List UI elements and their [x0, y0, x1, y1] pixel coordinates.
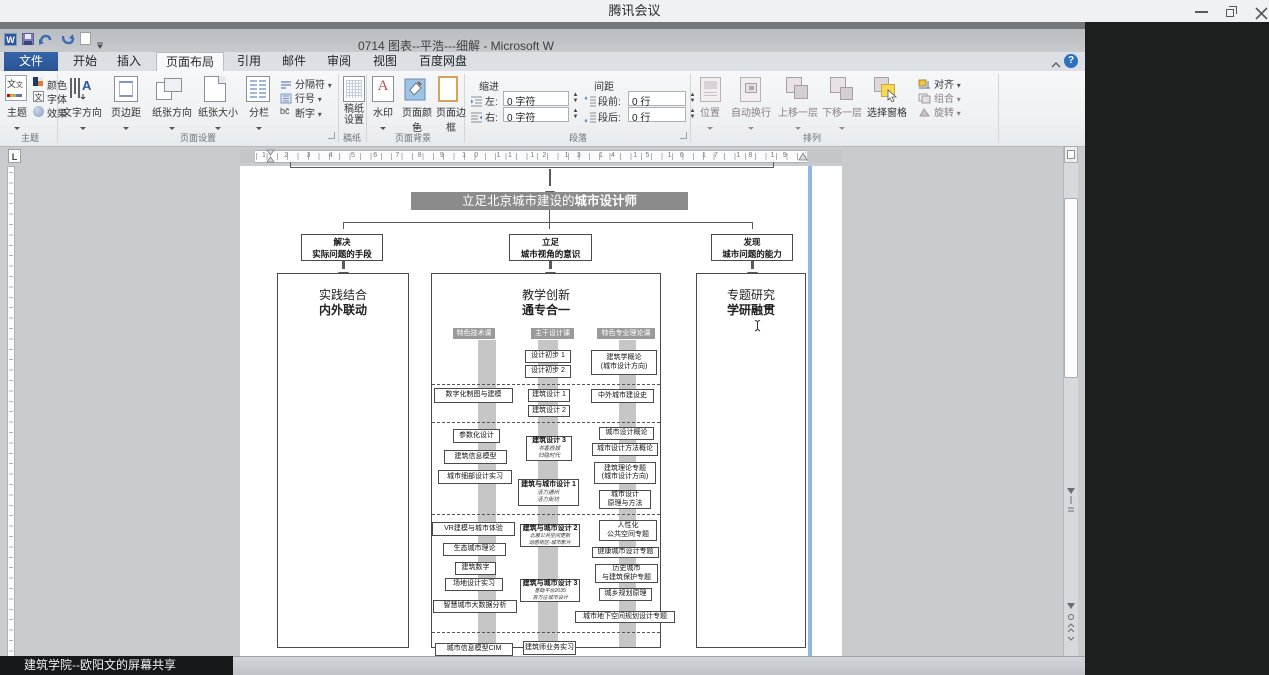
svg-text:A: A: [82, 78, 92, 93]
